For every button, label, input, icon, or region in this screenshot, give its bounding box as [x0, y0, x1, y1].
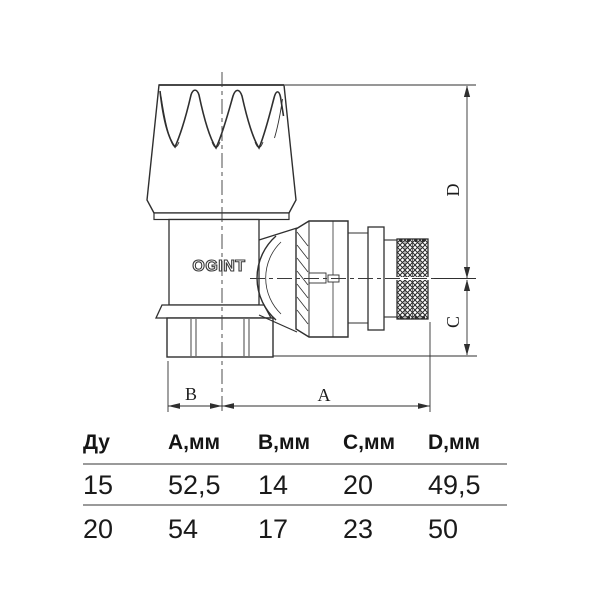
col-header-c: С,мм [343, 429, 428, 465]
valve-technical-drawing: OGINT [0, 0, 600, 428]
table-cell: 52,5 [168, 465, 258, 506]
dim-label-A: A [318, 385, 331, 405]
dim-label-B: B [185, 384, 197, 404]
valve-spec-sheet: OGINT [0, 0, 600, 600]
spec-table: Ду А,мм В,мм С,мм D,мм 15 52,5 14 20 49,… [83, 429, 507, 548]
table-cell: 50 [428, 506, 507, 548]
brand-logo: OGINT [192, 258, 245, 275]
col-header-b: В,мм [258, 429, 343, 465]
table-cell: 17 [258, 506, 343, 548]
col-header-du: Ду [83, 429, 168, 465]
valve-handle [147, 85, 296, 220]
table-cell: 15 [83, 465, 168, 506]
valve-drawing-svg: OGINT [0, 0, 600, 428]
col-header-d: D,мм [428, 429, 507, 465]
dim-label-C: C [443, 316, 463, 328]
table-cell: 14 [258, 465, 343, 506]
table-cell: 54 [168, 506, 258, 548]
table-cell: 20 [343, 465, 428, 506]
dim-label-D: D [443, 184, 463, 197]
table-cell: 20 [83, 506, 168, 548]
table-cell: 23 [343, 506, 428, 548]
hex-nut [167, 318, 273, 357]
table-cell: 49,5 [428, 465, 507, 506]
col-header-a: А,мм [168, 429, 258, 465]
